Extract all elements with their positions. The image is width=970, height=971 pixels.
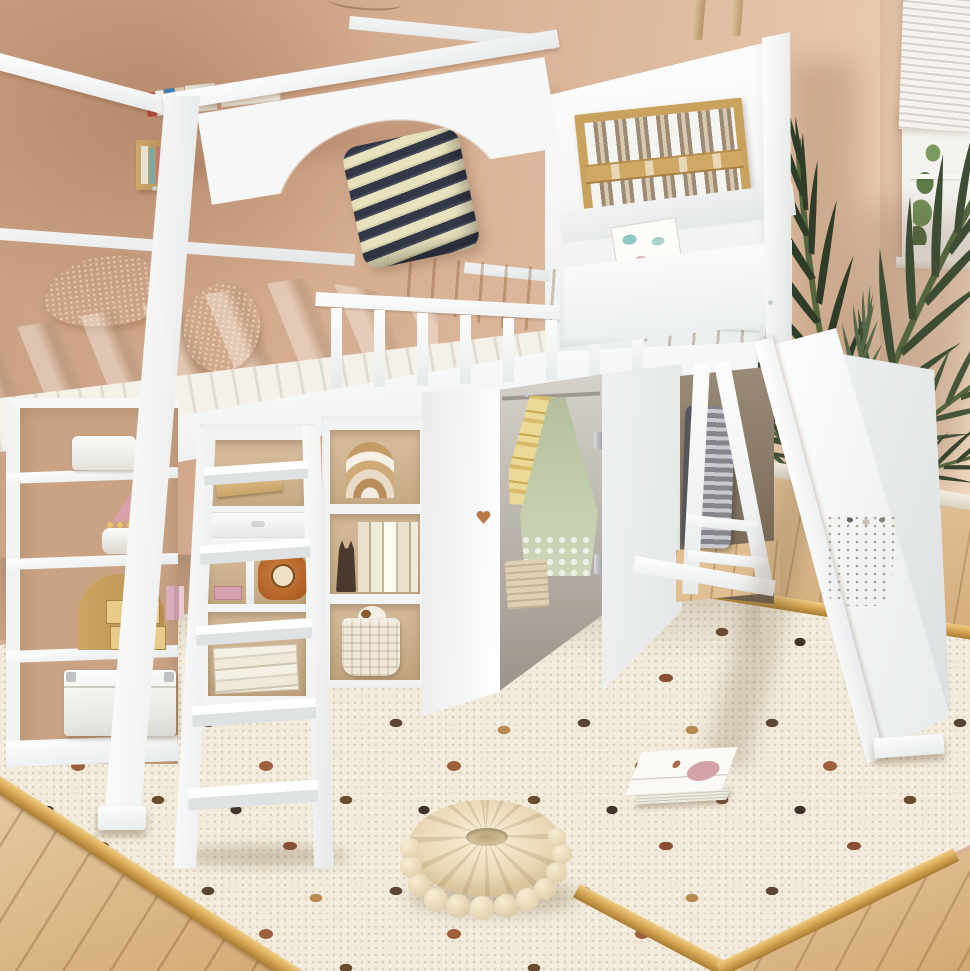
pouf-dimple xyxy=(466,828,508,846)
hamper-in-wardrobe xyxy=(504,559,549,610)
pompom xyxy=(400,838,420,858)
guardrail-spindle-2 xyxy=(374,310,385,387)
door-hinge xyxy=(594,554,603,574)
pink-book-flat xyxy=(214,586,242,600)
plant-pot xyxy=(818,514,902,606)
pink-books xyxy=(166,586,184,620)
post-foot xyxy=(98,806,146,830)
wardrobe-door-open xyxy=(420,386,500,718)
pot-pebbles xyxy=(824,514,896,528)
bookshelf-cubby-mid xyxy=(330,514,420,594)
pompom xyxy=(424,888,448,912)
book-row xyxy=(358,522,418,592)
pompom xyxy=(548,828,566,846)
guardrail-spindle-3 xyxy=(417,313,428,386)
white-basket xyxy=(72,436,136,470)
frame-screw xyxy=(768,300,773,305)
cat-bookend xyxy=(336,540,356,592)
lattice-mid-rail xyxy=(585,149,744,184)
mini-book xyxy=(141,146,148,184)
frame-screw xyxy=(152,186,157,191)
bookshelf xyxy=(322,416,428,688)
door-hinge xyxy=(594,432,603,449)
pompom xyxy=(552,844,572,864)
guardrail-spindle-6 xyxy=(546,320,557,380)
drawer-handle xyxy=(251,521,265,527)
pouf xyxy=(400,800,572,916)
guardrail-spindle-1 xyxy=(331,308,342,388)
clock-face xyxy=(271,564,295,588)
bookshelf-cubby-top xyxy=(330,430,420,504)
magazine-cover xyxy=(625,747,737,795)
guardrail-spindle-4 xyxy=(460,315,471,384)
frame-screw xyxy=(524,392,529,397)
shelf-board xyxy=(6,735,179,767)
pompom xyxy=(546,862,567,883)
trunk-corner xyxy=(66,672,76,682)
heart-cutout xyxy=(476,510,491,524)
pompom xyxy=(494,894,518,918)
bookshelf-cubby-bottom xyxy=(330,604,420,680)
magazine-stack xyxy=(213,644,299,694)
guardrail-spindle-5 xyxy=(503,318,514,382)
rainbow-arch-toy xyxy=(346,442,394,498)
pompom xyxy=(446,894,470,918)
mini-book xyxy=(149,148,155,184)
woven-basket xyxy=(342,618,400,676)
trunk-corner xyxy=(164,672,174,682)
room-photo xyxy=(0,0,970,971)
small-drawer xyxy=(206,512,308,538)
magazine-on-rug xyxy=(633,748,732,809)
pompom xyxy=(470,896,494,920)
